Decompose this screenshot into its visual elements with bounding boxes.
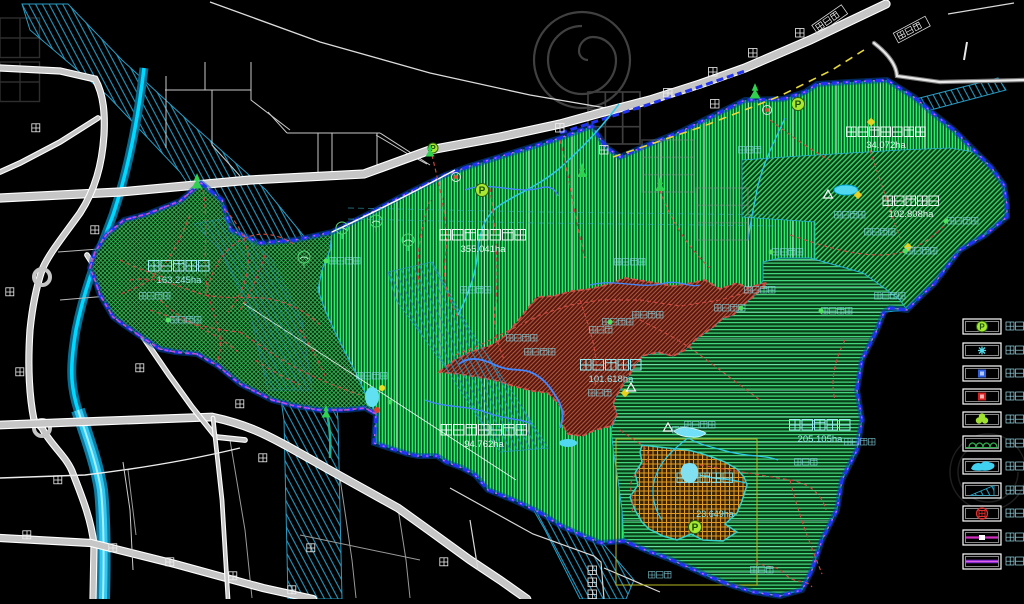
svg-text:102.808ha: 102.808ha	[889, 209, 935, 220]
svg-text:P: P	[692, 523, 699, 534]
svg-text:23.649ha: 23.649ha	[696, 509, 734, 519]
svg-text:P: P	[795, 100, 802, 111]
svg-text:P: P	[979, 323, 985, 332]
svg-text:34.072ha: 34.072ha	[866, 140, 906, 151]
svg-text:101.618ha: 101.618ha	[589, 374, 635, 385]
svg-text:205.105ha: 205.105ha	[798, 434, 844, 445]
svg-text:355.041ha: 355.041ha	[461, 244, 507, 255]
svg-text:163.245ha: 163.245ha	[157, 275, 203, 286]
svg-text:P: P	[479, 186, 486, 197]
svg-text:94.762ha: 94.762ha	[464, 439, 504, 450]
